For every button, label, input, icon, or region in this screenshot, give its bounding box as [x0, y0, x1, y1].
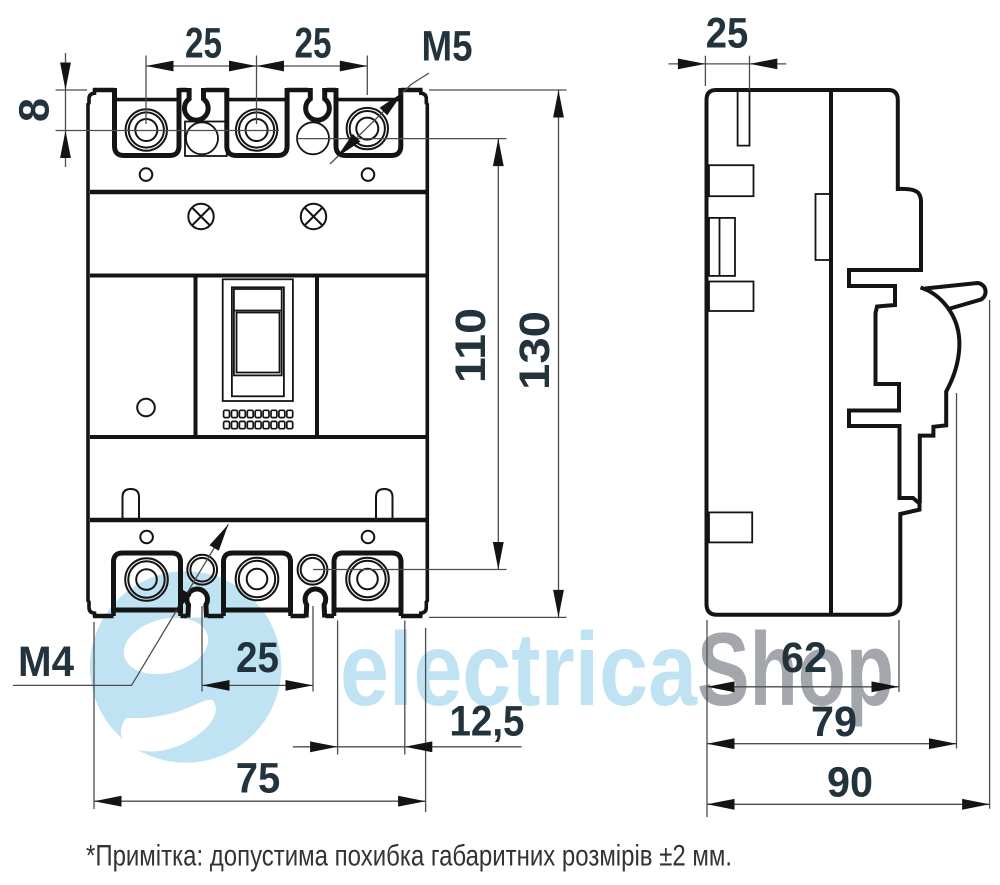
- svg-text:M4: M4: [18, 638, 74, 686]
- svg-text:8: 8: [11, 98, 59, 122]
- svg-text:25: 25: [185, 20, 222, 68]
- svg-text:79: 79: [811, 698, 857, 746]
- svg-text:M5: M5: [422, 23, 473, 71]
- svg-text:62: 62: [781, 634, 827, 682]
- svg-text:*Примітка: допустима похибка г: *Примітка: допустима похибка габаритних …: [86, 840, 732, 873]
- svg-text:12,5: 12,5: [450, 698, 525, 746]
- svg-text:90: 90: [827, 759, 873, 807]
- svg-text:130: 130: [511, 311, 559, 390]
- svg-text:75: 75: [236, 755, 281, 803]
- svg-text:25: 25: [706, 10, 749, 58]
- svg-text:25: 25: [295, 20, 332, 68]
- svg-text:25: 25: [236, 634, 279, 682]
- svg-text:110: 110: [447, 308, 495, 383]
